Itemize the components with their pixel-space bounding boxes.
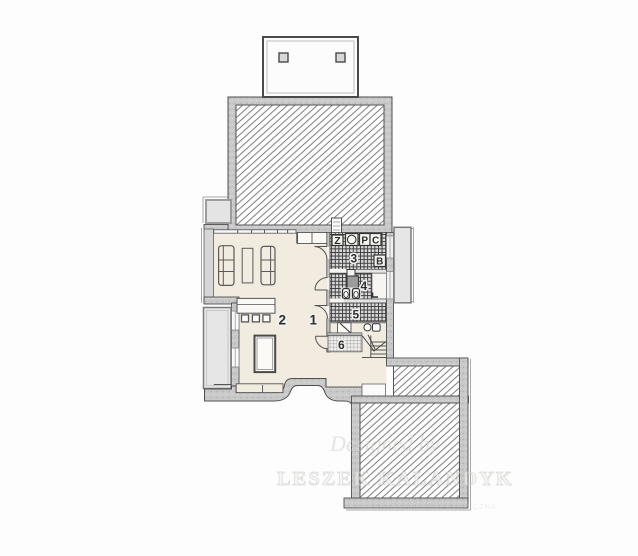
svg-text:2: 2 — [279, 313, 287, 328]
svg-text:Designed by: Designed by — [329, 431, 440, 456]
svg-text:5: 5 — [353, 308, 360, 322]
svg-text:PRACOWNIA ARCHITEKTONICZNA: PRACOWNIA ARCHITEKTONICZNA — [352, 502, 496, 511]
svg-text:4: 4 — [361, 279, 368, 293]
svg-text:1: 1 — [310, 313, 318, 328]
svg-text:Z: Z — [334, 235, 341, 247]
svg-text:LESZEK KALANDYK: LESZEK KALANDYK — [277, 468, 514, 490]
svg-text:6: 6 — [338, 338, 345, 352]
svg-text:C: C — [372, 236, 379, 247]
svg-text:P: P — [361, 236, 368, 247]
svg-text:B: B — [376, 257, 383, 268]
svg-text:3: 3 — [351, 252, 358, 266]
